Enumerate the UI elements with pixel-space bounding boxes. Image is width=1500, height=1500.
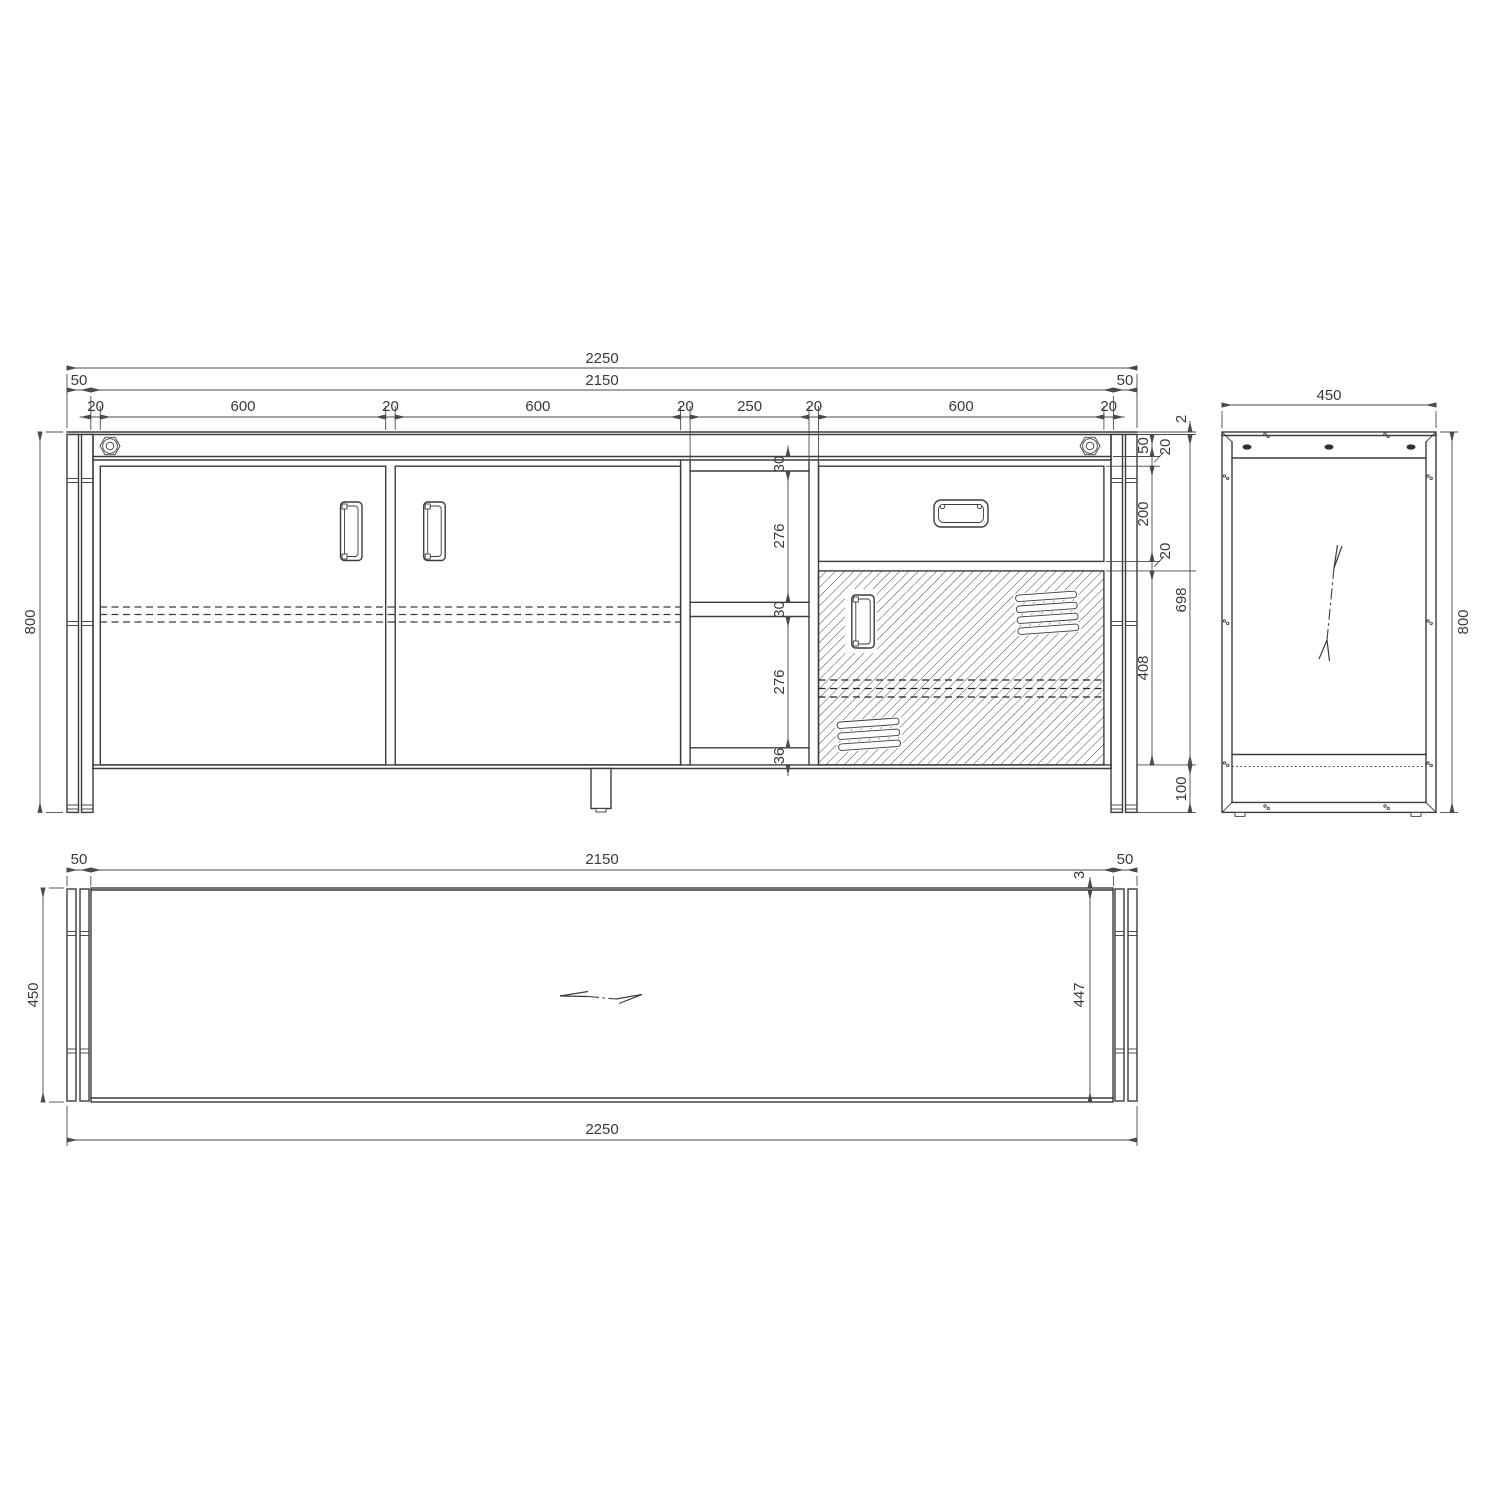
drawing-sheet: 2250 50 2150 50 20 [0,0,1500,1500]
dim-right-b2: 698 [1173,587,1190,612]
dim-front-seg-4: 600 [525,398,550,415]
front-right-leg [1111,435,1137,813]
plan-view: 50 2150 50 3 447 450 2250 [25,851,1137,1146]
drawer [819,466,1104,561]
plan-top-panel [91,888,1113,1102]
dim-side-width: 450 [1316,387,1341,404]
dim-front-total-width: 2250 [585,350,618,367]
door-left-handle [341,502,363,561]
dim-right-a3: 200 [1135,501,1152,526]
side-fastener-marks [1223,433,1432,810]
front-left-leg [67,435,93,813]
dim-front-leg-left: 50 [71,372,88,389]
vent-slats-bottom [835,716,903,752]
center-foot [591,769,611,813]
dim-front-height: 800 [22,609,39,634]
dim-right-a5: 408 [1135,655,1152,680]
dim-plan-overhang: 3 [1071,871,1088,879]
dim-right-a1: 50 [1135,437,1152,454]
dim-front-seg-1: 20 [87,398,104,415]
hatched-door-handle [845,589,877,653]
front-view: 2250 50 2150 50 20 [22,350,1196,812]
dim-mid-5: 36 [771,748,788,765]
dim-plan-total-width: 2250 [585,1121,618,1138]
dim-right-a2: 20 [1157,439,1174,456]
technical-drawing: 2250 50 2150 50 20 [0,0,1500,1500]
dim-front-leg-right: 50 [1117,372,1134,389]
dim-front-seg-8: 600 [949,398,974,415]
front-top-plate [67,432,1137,435]
dim-mid-4: 276 [771,669,788,694]
open-compartment [681,460,819,765]
dim-plan-depth: 450 [25,982,42,1007]
door-middle-handle [424,502,446,561]
plan-centerline-symbol [560,992,642,1004]
dim-side-height: 800 [1455,609,1472,634]
front-right-bolt [1080,437,1100,454]
dim-front-seg-6: 250 [737,398,762,415]
dim-plan-inner-width: 2150 [585,851,618,868]
hatched-door [819,571,1104,765]
dim-front-seg-5: 20 [677,398,694,415]
side-screws [1243,444,1416,449]
dim-right-b1: 2 [1173,415,1190,423]
dim-mid-1: 30 [771,456,788,473]
drawer-handle [934,500,988,527]
dim-front-seg-9: 20 [1100,398,1117,415]
dim-front-inner-width: 2150 [585,372,618,389]
side-view: 450 800 [1222,387,1472,816]
dim-mid-3: 30 [771,601,788,618]
hidden-shelf-lines [100,607,681,622]
side-centerline-symbol [1319,545,1342,661]
dim-mid-2: 276 [771,523,788,548]
dim-front-seg-3: 20 [382,398,399,415]
side-foot-left [1235,812,1245,816]
plan-left-leg [67,889,89,1101]
front-left-bolt [100,437,120,454]
dim-right-a4: 20 [1157,543,1174,560]
dim-plan-leg-right: 50 [1117,851,1134,868]
plan-right-leg [1115,889,1137,1101]
side-dimensions: 450 800 [1222,387,1472,812]
dim-front-seg-7: 20 [805,398,822,415]
side-foot-right [1411,812,1421,816]
dim-right-b3: 100 [1173,776,1190,801]
dim-plan-depth-inner: 447 [1071,982,1088,1007]
dim-front-seg-2: 600 [230,398,255,415]
dim-plan-leg-left: 50 [71,851,88,868]
